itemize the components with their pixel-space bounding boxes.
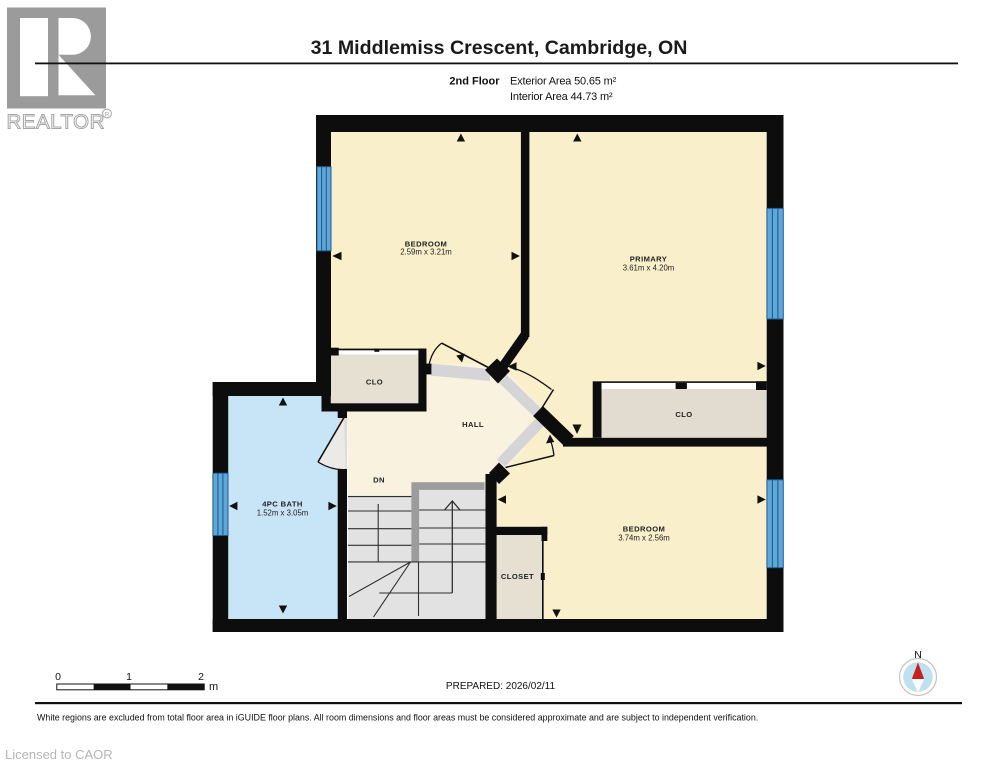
svg-text:m: m (209, 681, 218, 693)
svg-text:2nd Floor: 2nd Floor (449, 75, 500, 87)
svg-text:0: 0 (55, 671, 61, 683)
svg-text:REALTOR: REALTOR (7, 111, 105, 134)
svg-text:CLO: CLO (366, 378, 383, 387)
svg-text:White regions are excluded fro: White regions are excluded from total fl… (37, 713, 758, 723)
svg-text:CLO: CLO (675, 410, 692, 419)
svg-text:PRIMARY: PRIMARY (630, 255, 668, 264)
svg-text:BEDROOM: BEDROOM (623, 525, 665, 534)
svg-text:Licensed to CAOR: Licensed to CAOR (5, 747, 113, 762)
svg-text:R: R (105, 111, 110, 118)
svg-text:2: 2 (198, 671, 204, 683)
svg-text:Exterior Area 50.65 m²: Exterior Area 50.65 m² (510, 75, 617, 87)
svg-text:HALL: HALL (462, 420, 484, 429)
svg-text:3.74m x 2.56m: 3.74m x 2.56m (618, 534, 670, 543)
svg-text:CLOSET: CLOSET (501, 572, 534, 581)
svg-text:31 Middlemiss Crescent, Cambri: 31 Middlemiss Crescent, Cambridge, ON (311, 37, 688, 59)
svg-text:2.59m x 3.21m: 2.59m x 3.21m (400, 248, 452, 257)
svg-text:1.52m x 3.05m: 1.52m x 3.05m (257, 509, 309, 518)
svg-text:1: 1 (126, 671, 132, 683)
svg-text:4PC BATH: 4PC BATH (262, 500, 303, 509)
svg-text:3.61m x 4.20m: 3.61m x 4.20m (623, 264, 675, 273)
svg-text:PREPARED: 2026/02/11: PREPARED: 2026/02/11 (446, 681, 556, 692)
svg-text:DN: DN (373, 476, 385, 485)
svg-text:Interior Area 44.73 m²: Interior Area 44.73 m² (510, 91, 613, 103)
